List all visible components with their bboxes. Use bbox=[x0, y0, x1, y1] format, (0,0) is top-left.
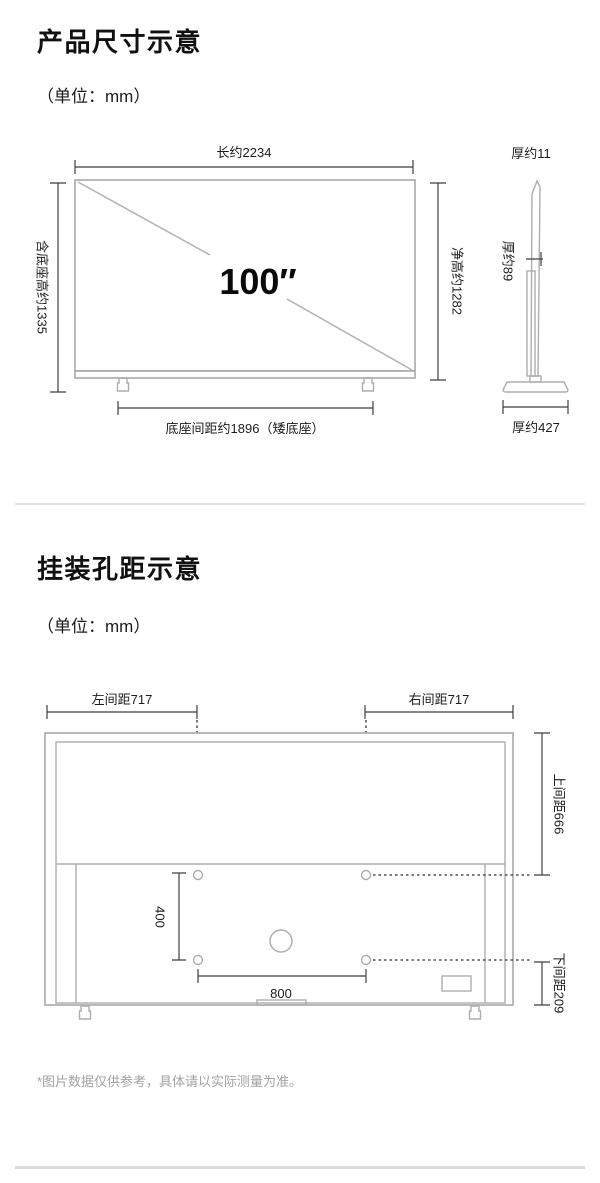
product-size-diagram-svg: 长约2234 含底座高约1335 净高约1282 100″ 底座间距约1896（… bbox=[0, 130, 600, 460]
screen-size-label: 100″ bbox=[219, 261, 296, 302]
base-depth-label: 厚约427 bbox=[512, 420, 560, 435]
mid-thickness-label: 厚约89 bbox=[501, 241, 516, 281]
left-spacing-dimension-line bbox=[47, 705, 197, 719]
base-distance-dimension-line bbox=[118, 401, 373, 415]
tv-rear-outline bbox=[45, 733, 513, 1005]
section1-title: 产品尺寸示意 bbox=[37, 22, 202, 59]
section1-unit: （单位：mm） bbox=[37, 82, 150, 107]
top-spacing-dimension-line bbox=[534, 733, 550, 875]
hole-height-label: 400 bbox=[153, 906, 168, 928]
tv-side-neck bbox=[530, 376, 541, 382]
section2-unit: （单位：mm） bbox=[37, 612, 150, 637]
mount-hole-diagram-svg: 左间距717 右间距717 400 800 上间距666 下间距209 bbox=[0, 660, 600, 1040]
bottom-spacing-dimension-line bbox=[534, 962, 550, 1005]
disclaimer-note: *图片数据仅供参考，具体请以实际测量为准。 bbox=[37, 1071, 302, 1090]
top-thickness-label: 厚约11 bbox=[511, 146, 551, 161]
left-spacing-label: 左间距717 bbox=[92, 692, 153, 707]
width-dimension-label: 长约2234 bbox=[217, 145, 272, 160]
right-spacing-dimension-line bbox=[365, 705, 513, 719]
rear-right-foot bbox=[470, 1006, 481, 1019]
bottom-spacing-label: 下间距209 bbox=[552, 953, 567, 1014]
net-height-dimension-line bbox=[430, 183, 446, 380]
base-depth-dimension-line bbox=[503, 400, 568, 414]
net-height-dimension-label: 净高约1282 bbox=[450, 247, 465, 315]
front-left-foot bbox=[118, 378, 129, 391]
tv-side-base bbox=[503, 382, 568, 392]
hole-width-label: 800 bbox=[270, 986, 292, 1001]
product-dimension-page: 产品尺寸示意 （单位：mm） 长约2234 含底座高约1335 净高约1282 … bbox=[0, 0, 600, 1183]
right-spacing-label: 右间距717 bbox=[409, 692, 470, 707]
bottom-divider bbox=[15, 1166, 585, 1169]
mid-thickness-tick bbox=[526, 252, 543, 266]
top-spacing-label: 上间距666 bbox=[552, 774, 567, 835]
width-dimension-line bbox=[75, 160, 413, 174]
tv-front-bottom-bar bbox=[75, 371, 415, 378]
total-height-dimension-label: 含底座高约1335 bbox=[35, 240, 50, 334]
front-right-foot bbox=[363, 378, 374, 391]
section-divider bbox=[15, 503, 585, 505]
rear-left-foot bbox=[80, 1006, 91, 1019]
section2-title: 挂装孔距示意 bbox=[37, 549, 202, 586]
total-height-dimension-line bbox=[50, 183, 66, 392]
base-distance-dimension-label: 底座间距约1896（矮底座） bbox=[166, 421, 325, 436]
